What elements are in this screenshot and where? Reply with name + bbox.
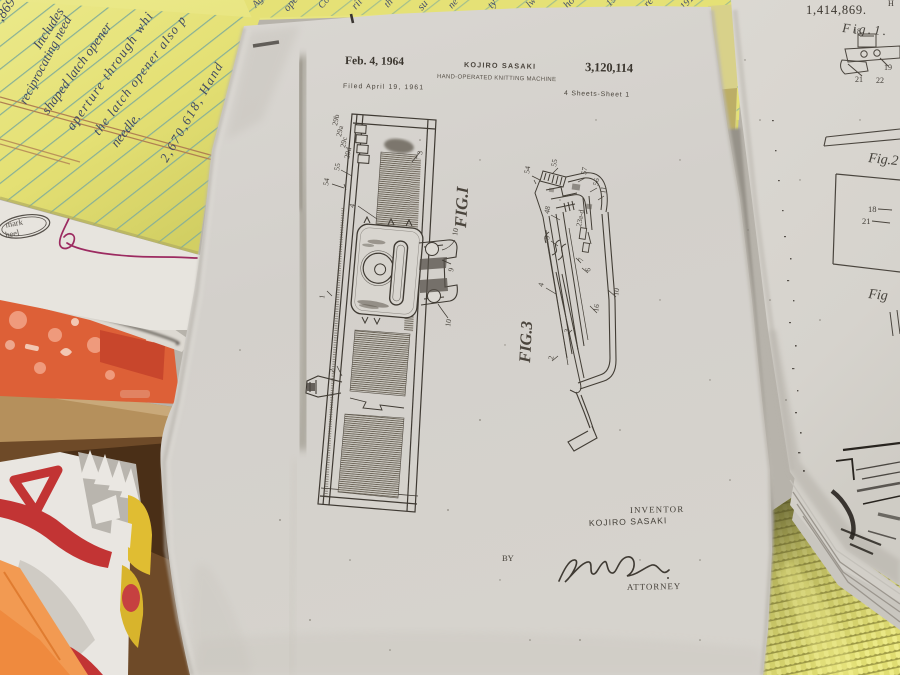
svg-text:18: 18 (868, 204, 877, 214)
svg-text:22: 22 (876, 76, 884, 85)
svg-text:3,120,114: 3,120,114 (585, 60, 634, 75)
svg-text:FIG.3: FIG.3 (515, 321, 536, 365)
svg-text:BY: BY (502, 553, 514, 563)
svg-text:H: H (888, 0, 894, 8)
svg-text:18: 18 (853, 27, 861, 36)
svg-text:Fig: Fig (867, 287, 889, 304)
svg-text:1,414,869.: 1,414,869. (806, 3, 866, 17)
svg-text:ATTORNEY: ATTORNEY (627, 581, 681, 592)
svg-text:21: 21 (862, 216, 871, 226)
svg-text:KOJIRO SASAKI: KOJIRO SASAKI (464, 60, 535, 71)
svg-text:FIG.I: FIG.I (451, 185, 472, 229)
svg-text:INVENTOR: INVENTOR (630, 504, 685, 515)
svg-text:Filed April 19, 1961: Filed April 19, 1961 (343, 83, 423, 91)
svg-text:Feb. 4, 1964: Feb. 4, 1964 (345, 55, 404, 68)
svg-text:Fig.1.: Fig.1. (841, 20, 887, 38)
svg-text:21: 21 (855, 75, 863, 84)
svg-text:19: 19 (884, 63, 892, 72)
